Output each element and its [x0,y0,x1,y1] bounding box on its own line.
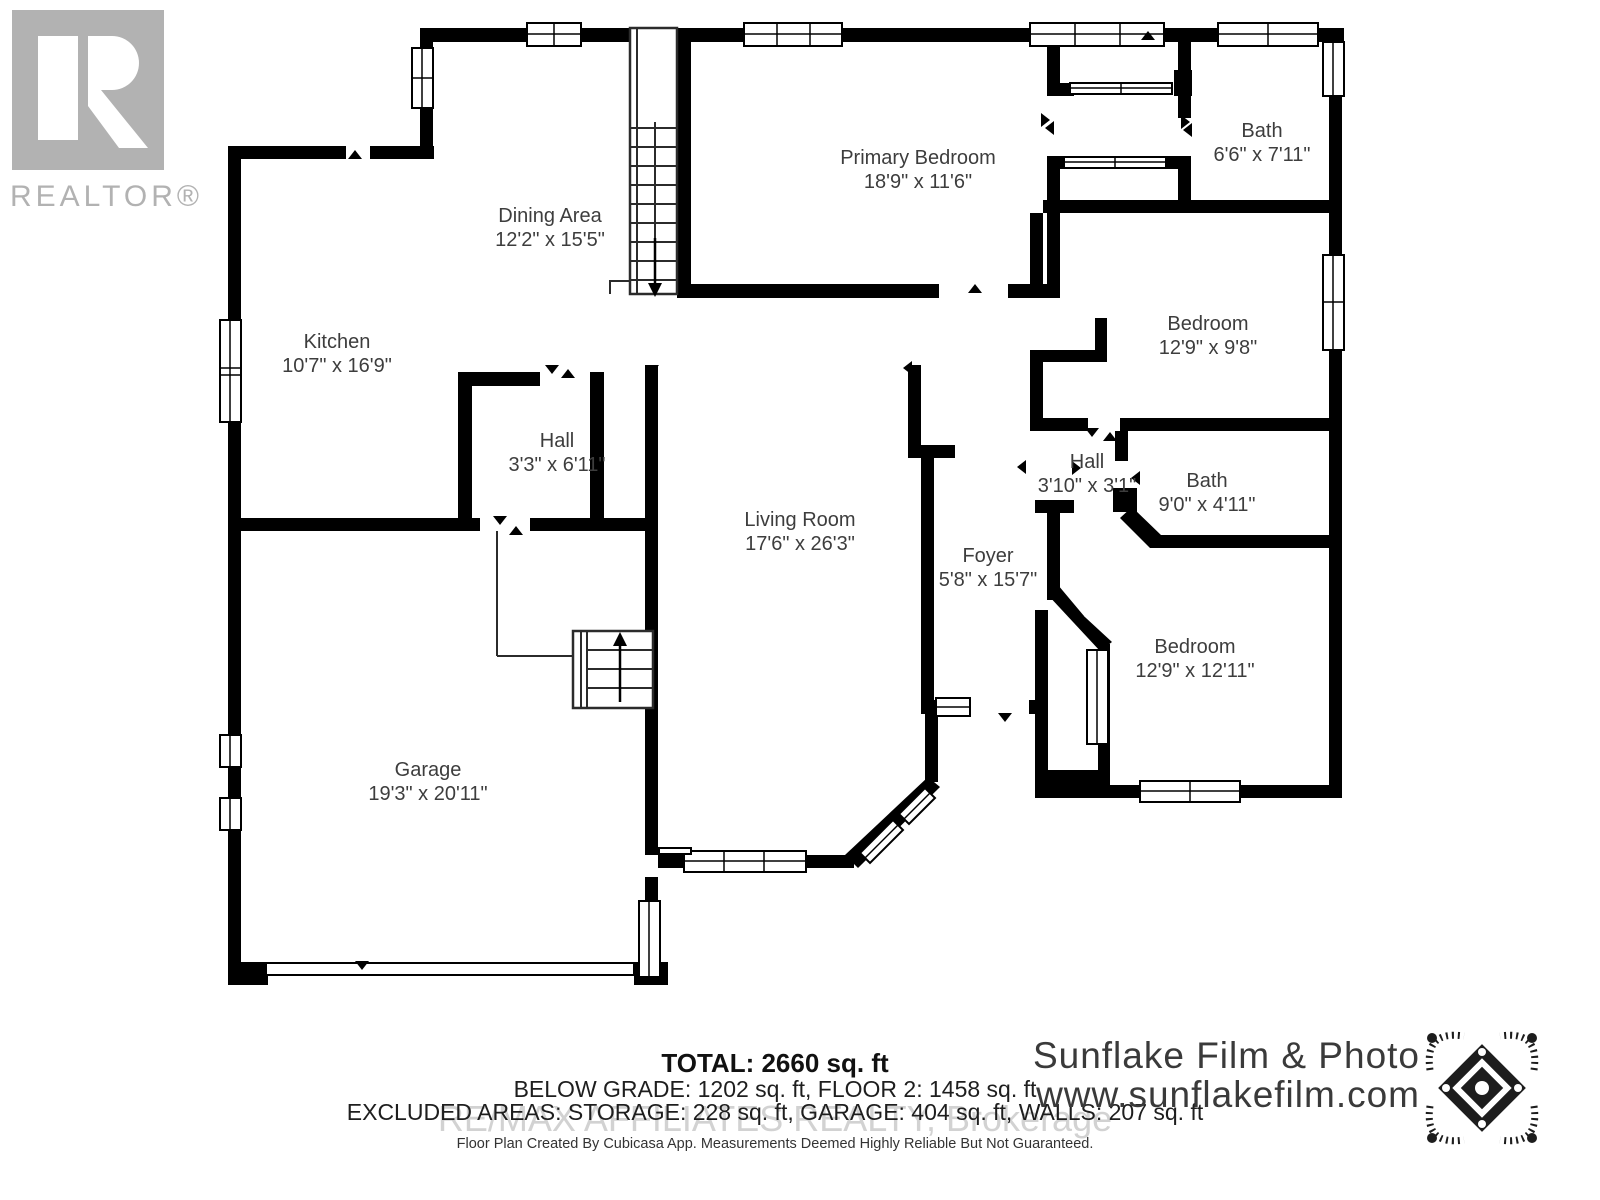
room-label-bath-1: Bath [1241,120,1282,142]
window-bedroom1-right [1323,255,1344,350]
window-kitchen-left [220,320,241,422]
room-label-living-room: Living Room [744,509,855,531]
window-living-bottom [684,851,806,872]
room-label-bath-2: Bath [1186,470,1227,492]
window-top-primary [744,23,842,46]
floor-plan-canvas: REALTOR® [0,0,1600,1200]
window-bedroom2-bottom [1140,781,1240,802]
window-top-closets [1030,23,1164,46]
closet-sliding-door-1 [1070,83,1172,94]
garage-side-door-leaf [659,848,691,854]
room-label-dining-area: Dining Area [498,205,602,227]
room-label-bedroom-1: Bedroom [1167,313,1248,335]
room-label-primary-bedroom: Primary Bedroom [840,147,996,169]
brand-url: www.sunflakefilm.com [1035,1074,1420,1115]
window-garage-left-2 [220,798,241,830]
door-leaf-bedroom2 [1050,585,1084,623]
realtor-logo: REALTOR® [10,10,203,213]
staircase-main [610,28,677,297]
window-top-dining [527,23,581,46]
room-dims-kitchen: 10'7" x 16'9" [282,355,392,377]
room-label-bedroom-2: Bedroom [1154,636,1235,658]
room-dims-bedroom-1: 12'9" x 9'8" [1159,337,1258,359]
window-top-bath [1218,23,1318,46]
window-entry [936,698,970,716]
room-label-hall-2: Hall [1070,451,1104,473]
room-label-kitchen: Kitchen [304,331,371,353]
closet-sliding-door-2 [1064,157,1166,168]
window-garage-left-1 [220,735,241,767]
window-dining-left [412,48,433,108]
total-area-text: TOTAL: 2660 sq. ft [661,1048,889,1078]
room-labels-layer: Dining Area 12'2" x 15'5" Kitchen 10'7" … [282,120,1310,805]
room-dims-primary-bedroom: 18'9" x 11'6" [864,171,972,193]
window-bedroom2-left [1087,650,1108,744]
window-garage-right [639,901,660,977]
staircase-basement [497,531,653,708]
room-label-hall-1: Hall [540,430,574,452]
room-label-garage: Garage [395,759,462,781]
room-dims-garage: 19'3" x 20'11" [368,783,487,805]
room-dims-bath-2: 9'0" x 4'11" [1158,494,1255,516]
room-label-foyer: Foyer [962,545,1013,567]
room-dims-hall-1: 3'3" x 6'11" [508,454,605,476]
room-dims-hall-2: 3'10" x 3'1" [1038,475,1137,497]
garage-door [266,963,634,975]
realtor-r-bar [38,36,78,140]
room-dims-bedroom-2: 12'9" x 12'11" [1135,660,1254,682]
sunflake-ornament-icon [1427,1033,1537,1143]
window-bath1-right [1323,42,1344,96]
room-dims-bath-1: 6'6" x 7'11" [1213,144,1310,166]
room-dims-dining-area: 12'2" x 15'5" [495,229,605,251]
room-dims-foyer: 5'8" x 15'7" [939,569,1038,591]
disclaimer-text: Floor Plan Created By Cubicasa App. Meas… [457,1136,1094,1152]
room-dims-living-room: 17'6" x 26'3" [745,533,855,555]
realtor-wordmark: REALTOR® [10,180,203,213]
brand-name: Sunflake Film & Photo [1033,1035,1420,1076]
